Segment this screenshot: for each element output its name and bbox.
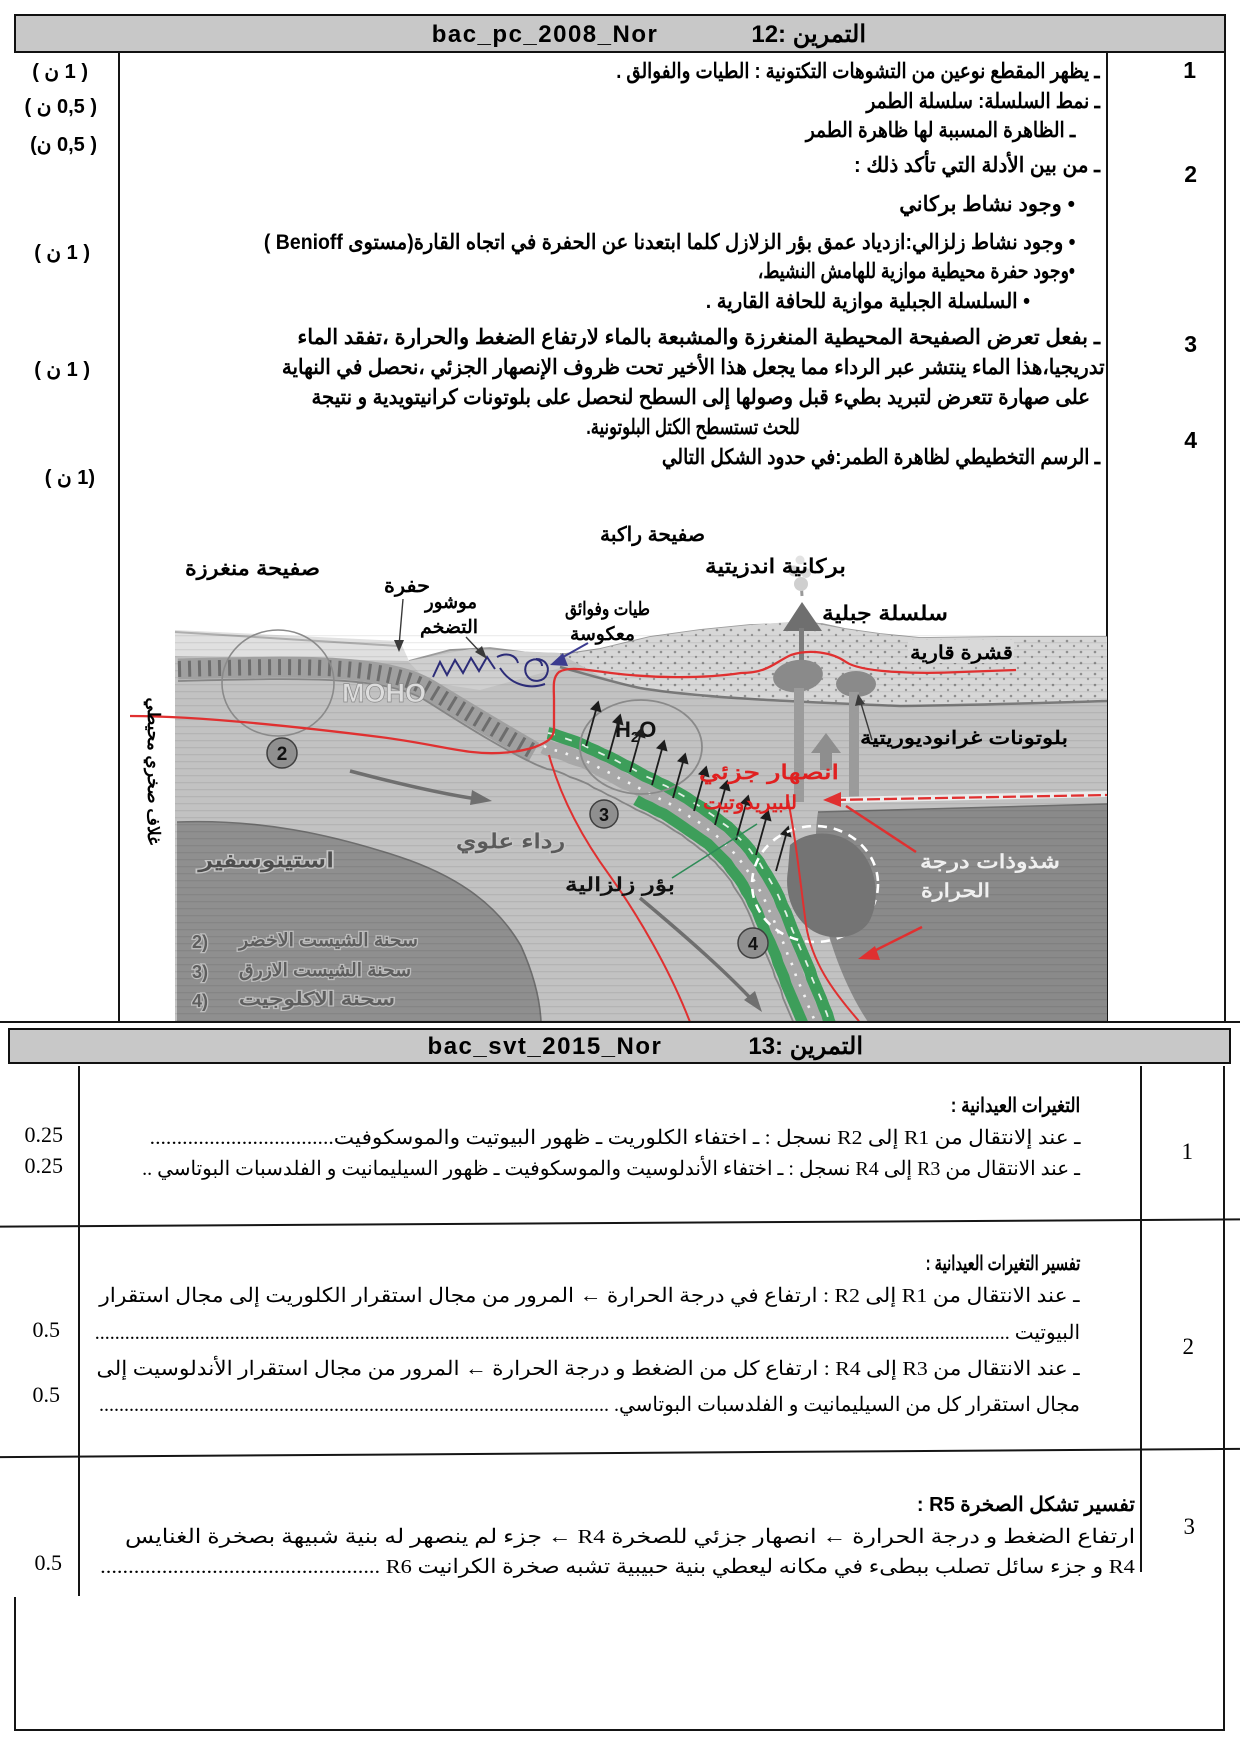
svg-text:استينوسفير: استينوسفير bbox=[196, 850, 334, 873]
svg-text:موشور: موشور bbox=[423, 591, 477, 613]
svg-text:4): 4) bbox=[192, 991, 208, 1011]
svg-text:بلوتونات غرانوديوريتية: بلوتونات غرانوديوريتية bbox=[860, 727, 1068, 749]
svg-text:MOHO: MOHO bbox=[342, 678, 426, 708]
svg-text:طيات وفوائق: طيات وفوائق bbox=[565, 598, 650, 620]
svg-text:3: 3 bbox=[599, 805, 609, 825]
svg-text:صفيحة راكبة: صفيحة راكبة bbox=[600, 524, 705, 547]
svg-text:حفرة: حفرة bbox=[384, 576, 430, 597]
svg-text:معكوسة: معكوسة bbox=[570, 623, 635, 645]
svg-text:رداء علوي: رداء علوي bbox=[456, 831, 565, 854]
svg-text:شذوذات درجة: شذوذات درجة bbox=[920, 852, 1060, 873]
svg-text:3): 3) bbox=[192, 962, 208, 982]
svg-text:صفيحة منغرزة: صفيحة منغرزة bbox=[185, 558, 320, 581]
svg-text:سحنة الشيست الاخضر: سحنة الشيست الاخضر bbox=[237, 930, 418, 951]
svg-text:الحرارة: الحرارة bbox=[921, 881, 990, 902]
svg-text:سلسلة جبلية: سلسلة جبلية bbox=[822, 603, 948, 625]
svg-text:التضخم: التضخم bbox=[420, 616, 478, 638]
svg-text:2): 2) bbox=[192, 932, 208, 952]
svg-text:2: 2 bbox=[277, 744, 288, 765]
svg-text:بركانية اندزيتية: بركانية اندزيتية bbox=[705, 556, 846, 579]
svg-text:بؤر زلزالية: بؤر زلزالية bbox=[565, 875, 675, 896]
svg-text:غلاف صخري محيطي: غلاف صخري محيطي bbox=[143, 697, 163, 845]
svg-text:سحنة الاكلوجيت: سحنة الاكلوجيت bbox=[239, 989, 395, 1010]
svg-text:قشرة قارية: قشرة قارية bbox=[910, 643, 1013, 664]
svg-text:4: 4 bbox=[748, 934, 758, 954]
svg-text:للبيريدوتيت: للبيريدوتيت bbox=[703, 793, 797, 814]
svg-text:انصهار جزئي: انصهار جزئي bbox=[699, 762, 839, 785]
svg-text:سحنة الشيست الازرق: سحنة الشيست الازرق bbox=[239, 960, 411, 981]
